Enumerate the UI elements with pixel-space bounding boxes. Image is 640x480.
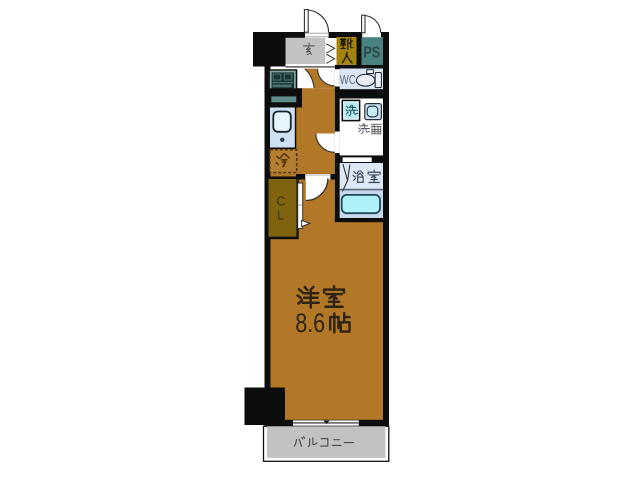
svg-text:WC: WC [340,72,356,87]
svg-text:C: C [277,195,286,209]
svg-text:8.6: 8.6 [295,308,325,338]
svg-text:L: L [277,209,284,223]
svg-text:PS: PS [363,45,380,62]
